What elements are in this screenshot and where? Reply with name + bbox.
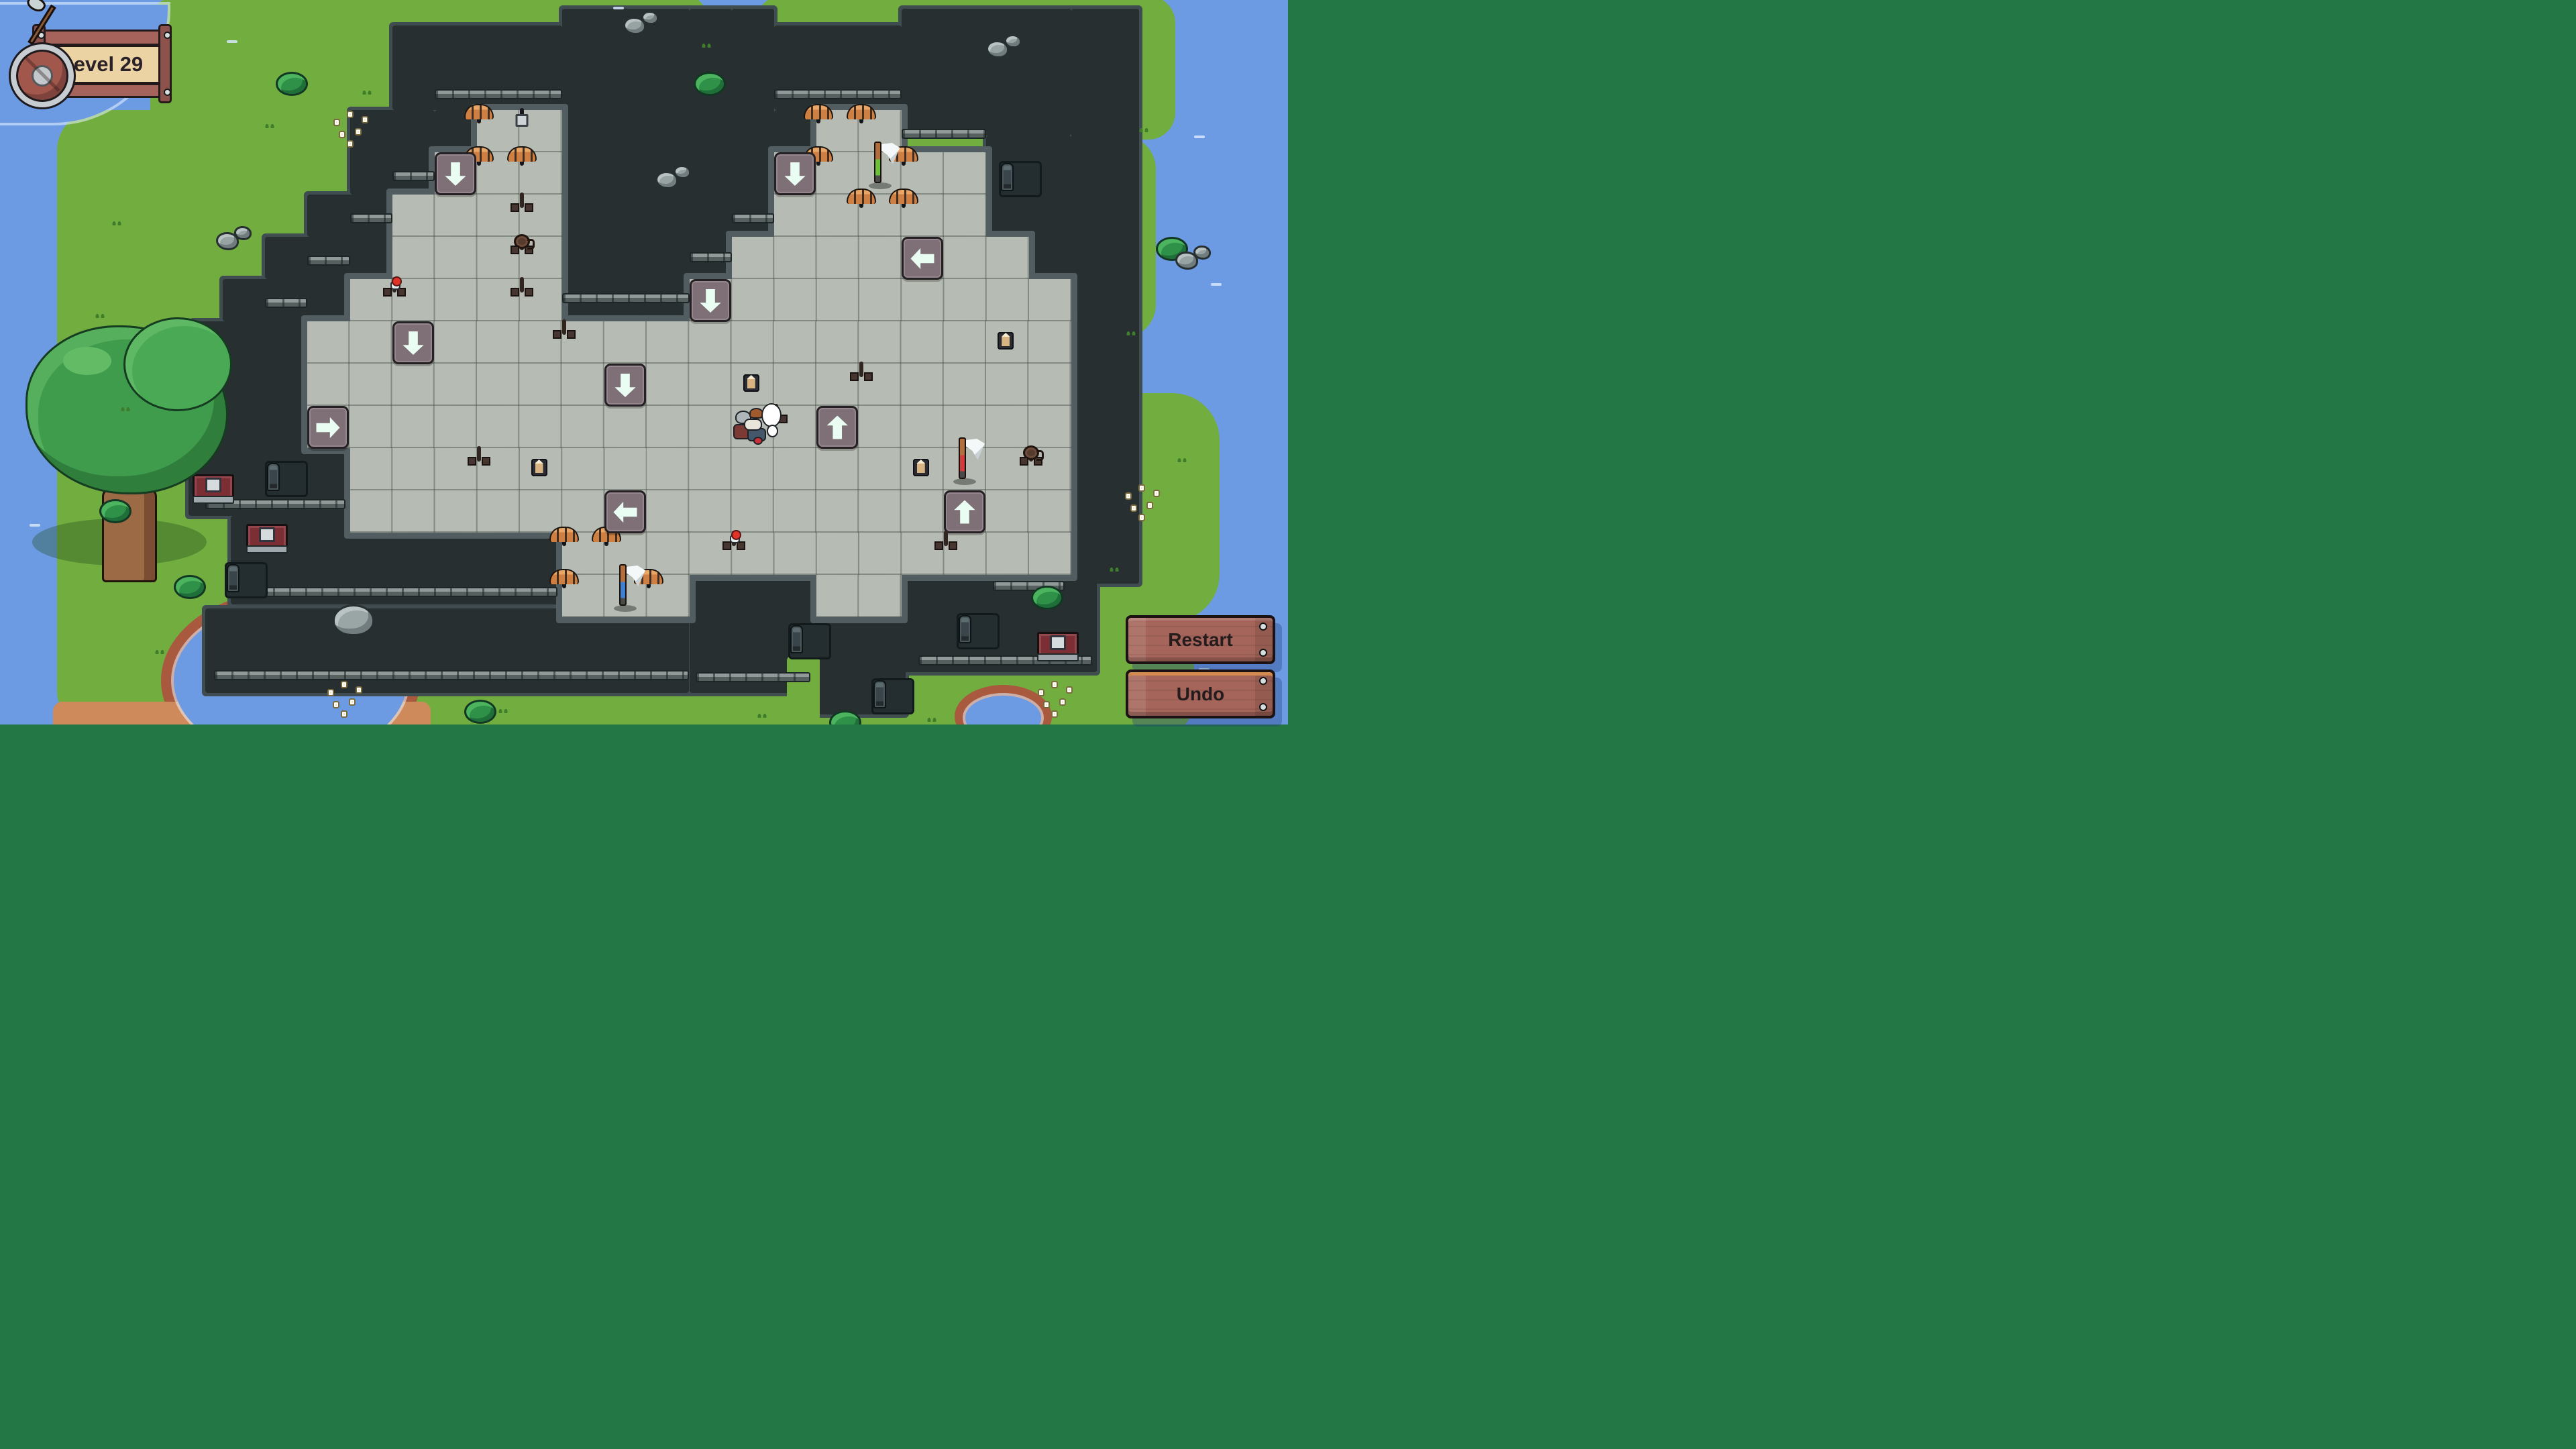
door-slot <box>873 680 886 708</box>
candle-group <box>520 448 562 490</box>
down-arrow-icon <box>444 162 467 186</box>
bed-blue[interactable] <box>520 152 562 195</box>
stone-ledge <box>774 89 902 99</box>
candle-group <box>986 321 1028 364</box>
candle-group <box>902 448 944 490</box>
door-pair <box>999 161 1042 197</box>
shield-icon <box>11 44 74 107</box>
grass-path <box>787 655 820 723</box>
bush <box>174 575 206 599</box>
bush <box>99 499 131 523</box>
mug-icon <box>1023 445 1039 460</box>
stone-ledge <box>732 213 774 223</box>
grass-tuft <box>112 220 121 225</box>
axe-red[interactable] <box>944 448 986 490</box>
wall <box>902 9 1071 136</box>
water-sparkle <box>613 7 624 9</box>
axe-green[interactable] <box>859 152 902 195</box>
flower-cluster <box>1035 678 1082 720</box>
sleep-bubble-icon <box>767 425 778 437</box>
stone-ledge <box>307 256 350 266</box>
stone-ledge <box>350 213 392 223</box>
stone-ledge <box>902 129 987 139</box>
grass-tuft <box>757 712 767 718</box>
potion-icon <box>390 282 400 290</box>
grass-tuft <box>1139 127 1148 132</box>
bed-green[interactable] <box>647 575 689 617</box>
stone-ledge <box>696 672 810 682</box>
arrow-tile-down[interactable] <box>774 152 816 195</box>
grass-tuft <box>362 89 372 95</box>
down-arrow-icon <box>699 289 722 313</box>
stone-ledge <box>239 587 557 597</box>
flower-cluster <box>325 678 372 720</box>
door-pair <box>957 613 1000 649</box>
stone-ledge <box>265 298 307 308</box>
sign-top-bar <box>35 30 169 46</box>
left-arrow-icon <box>910 247 934 270</box>
arrow-tile-up[interactable] <box>944 490 986 533</box>
grass-tuft <box>1177 457 1187 462</box>
table-with-potion <box>732 533 774 575</box>
arrow-tile-down[interactable] <box>690 279 732 321</box>
bed-red[interactable] <box>902 195 944 237</box>
stone-ledge <box>562 293 690 303</box>
down-arrow-icon <box>614 374 637 397</box>
door-pair <box>788 623 831 659</box>
door-pair <box>871 678 914 714</box>
arrow-tile-down[interactable] <box>392 321 435 364</box>
grass-tuft <box>927 716 936 722</box>
arrow-tile-down[interactable] <box>435 152 477 195</box>
table-with-mug <box>520 237 562 279</box>
arrow-tile-left[interactable] <box>604 490 647 533</box>
stone-ledge <box>392 171 435 181</box>
rock-cluster <box>655 165 693 193</box>
flower-cluster <box>1122 482 1169 523</box>
water-sparkle <box>1211 283 1222 286</box>
tree <box>23 317 251 606</box>
arrow-tile-right[interactable] <box>307 406 350 448</box>
grass-tuft <box>702 42 711 48</box>
bush <box>694 72 726 96</box>
table <box>520 279 562 321</box>
table <box>520 195 562 237</box>
table <box>944 533 986 575</box>
sleep-bubble-icon <box>761 403 782 427</box>
up-arrow-icon <box>953 500 976 524</box>
tall-table <box>859 364 902 448</box>
mug-icon <box>514 234 530 249</box>
arrow-tile-down[interactable] <box>604 364 647 406</box>
grass-tuft <box>1126 330 1136 335</box>
rock-cluster <box>1175 246 1213 274</box>
sleeping-vikings[interactable] <box>732 406 774 448</box>
floor[interactable] <box>816 575 902 617</box>
rock-cluster <box>986 34 1024 62</box>
table-with-potion <box>392 279 435 321</box>
grass-tuft <box>95 313 105 318</box>
arrow-tile-left[interactable] <box>902 237 944 279</box>
grass-tuft <box>155 649 164 654</box>
bed-red[interactable] <box>816 152 859 195</box>
arrow-tile-up[interactable] <box>816 406 859 448</box>
door-pair <box>265 461 308 497</box>
axe-blue[interactable] <box>604 575 647 617</box>
door-slot <box>959 615 971 643</box>
door-slot <box>1001 163 1014 191</box>
potion-icon <box>730 535 740 543</box>
grass-tuft <box>121 406 130 411</box>
wide-table <box>562 321 647 364</box>
boulder <box>333 604 374 636</box>
rock-cluster <box>623 11 661 39</box>
wall <box>1029 136 1071 279</box>
rock-cluster <box>216 226 254 254</box>
grass-tuft <box>1110 566 1119 572</box>
stone-ledge <box>214 670 689 680</box>
grass-tuft <box>498 708 508 713</box>
stone-ledge <box>435 89 562 99</box>
game-board <box>0 0 1288 724</box>
water-sparkle <box>1194 136 1205 138</box>
floor[interactable] <box>732 237 1029 279</box>
floor[interactable] <box>690 279 1071 321</box>
restart-button[interactable]: Restart <box>1126 615 1275 664</box>
bush <box>464 700 496 724</box>
level-sign: Level 29 <box>20 13 181 114</box>
water-sparkle <box>30 524 40 527</box>
candle-icon <box>998 332 1014 350</box>
down-arrow-icon <box>402 331 425 355</box>
right-arrow-icon <box>317 416 340 439</box>
bed-green[interactable] <box>562 575 604 617</box>
door-slot <box>267 463 280 491</box>
sign-post-right <box>158 24 172 103</box>
table-with-mug <box>1029 448 1071 490</box>
water-sparkle <box>227 40 237 43</box>
table <box>477 448 519 490</box>
candle-group <box>732 364 774 406</box>
undo-button[interactable]: Undo <box>1126 669 1275 718</box>
bush <box>1031 586 1063 610</box>
switch-panel-icon <box>246 524 288 549</box>
left-arrow-icon <box>614 500 637 523</box>
stone-ledge <box>690 252 732 262</box>
door-slot <box>790 625 803 653</box>
switch-panel-icon <box>1037 632 1079 657</box>
flower-cluster <box>331 108 378 150</box>
up-arrow-icon <box>826 416 849 439</box>
bush <box>276 72 308 96</box>
candle-icon <box>743 374 759 392</box>
candle-icon <box>913 459 929 476</box>
down-arrow-icon <box>784 162 806 186</box>
grass-tuft <box>265 123 274 128</box>
candle-icon <box>531 459 547 476</box>
treasure-chest[interactable] <box>520 110 562 152</box>
